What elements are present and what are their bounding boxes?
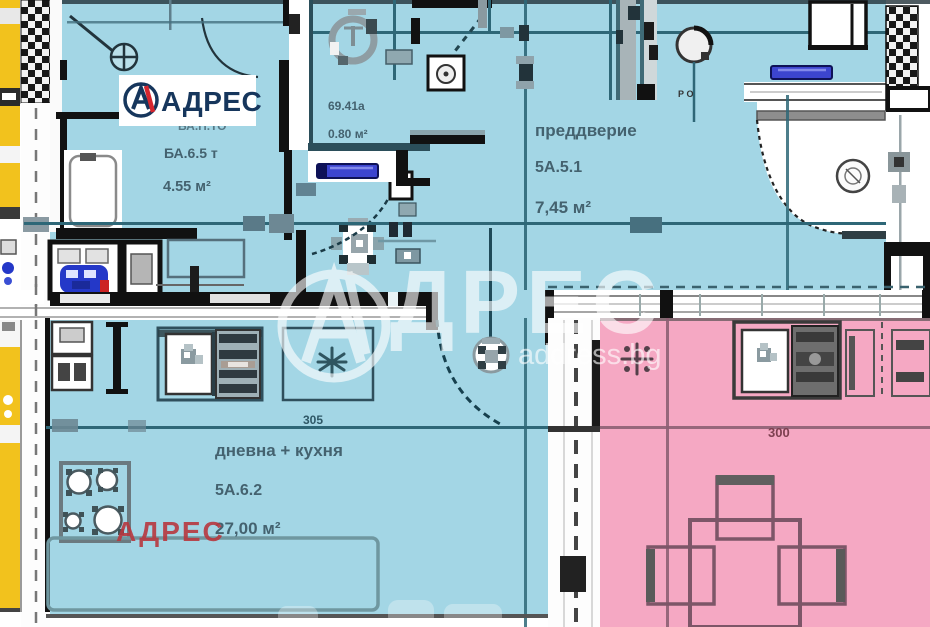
svg-text:4.55 м²: 4.55 м² (163, 179, 211, 195)
svg-text:АДРЕС: АДРЕС (161, 86, 262, 117)
svg-text:АДРЕС: АДРЕС (116, 516, 225, 547)
svg-text:5А.5.1: 5А.5.1 (535, 159, 582, 176)
svg-text:300: 300 (768, 425, 790, 440)
svg-text:дневна + кухня: дневна + кухня (215, 441, 343, 460)
svg-text:5А.6.2: 5А.6.2 (215, 482, 262, 499)
svg-text:преддверие: преддверие (535, 121, 637, 140)
svg-text:address.bg: address.bg (518, 339, 662, 371)
svg-text:7,45 м²: 7,45 м² (535, 198, 591, 217)
svg-text:69.41а: 69.41а (328, 99, 365, 113)
svg-text:0.80 м²: 0.80 м² (328, 127, 368, 141)
svg-text:Р О: Р О (678, 89, 694, 99)
svg-text:305: 305 (303, 413, 323, 427)
svg-text:27,00 м²: 27,00 м² (215, 519, 281, 538)
svg-text:БА.6.5 т: БА.6.5 т (164, 145, 218, 161)
svg-text:ДРЕС: ДРЕС (390, 253, 663, 353)
